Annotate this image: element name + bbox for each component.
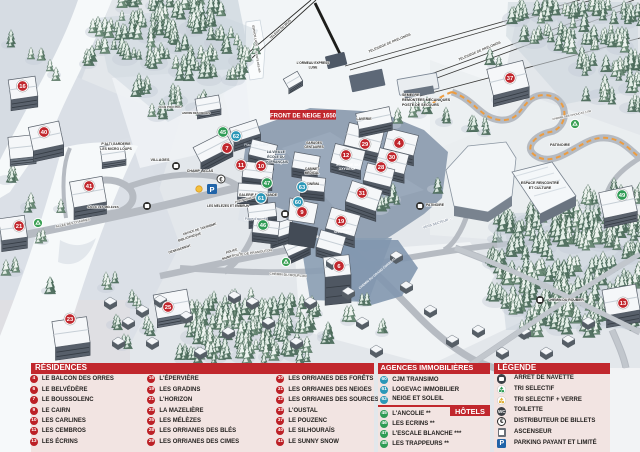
svg-text:19: 19 xyxy=(338,219,345,225)
svg-text:25: 25 xyxy=(165,305,172,311)
svg-text:10: 10 xyxy=(258,164,264,170)
svg-text:P: P xyxy=(209,185,214,194)
svg-text:CINÉMA: CINÉMA xyxy=(307,181,320,186)
svg-text:MÉDICAL: MÉDICAL xyxy=(305,170,320,175)
svg-text:SKI FRANÇAIS: SKI FRANÇAIS xyxy=(264,160,289,164)
svg-text:41: 41 xyxy=(86,184,93,190)
svg-text:CHAMP LACAS: CHAMP LACAS xyxy=(187,169,214,173)
svg-text:49: 49 xyxy=(619,193,626,199)
svg-text:LAVERIE: LAVERIE xyxy=(356,117,372,121)
svg-text:FRONT DE NEIGE 1650: FRONT DE NEIGE 1650 xyxy=(270,113,337,119)
svg-text:37: 37 xyxy=(507,76,513,82)
svg-text:7: 7 xyxy=(225,146,228,152)
svg-text:REMONTÉES MÉCANIQUES: REMONTÉES MÉCANIQUES xyxy=(402,97,451,102)
svg-text:CHEMIN DU ROUBIER: CHEMIN DU ROUBIER xyxy=(548,298,584,302)
svg-text:ESPACE RENCONTRE: ESPACE RENCONTRE xyxy=(521,181,560,185)
svg-text:12: 12 xyxy=(343,153,349,159)
svg-text:SPECTACLE: SPECTACLE xyxy=(334,230,352,234)
svg-text:ÉCOLE DU: ÉCOLE DU xyxy=(267,154,285,159)
svg-text:SEMELRE: SEMELRE xyxy=(402,93,420,97)
svg-text:JARDIN DES NEIGES: JARDIN DES NEIGES xyxy=(182,111,210,115)
svg-text:PATINOIRE: PATINOIRE xyxy=(550,143,571,147)
svg-text:47: 47 xyxy=(264,181,270,187)
svg-text:ET CULTURE: ET CULTURE xyxy=(529,186,552,190)
svg-text:60: 60 xyxy=(295,200,301,206)
svg-text:PATINOIRE: PATINOIRE xyxy=(426,203,445,207)
svg-text:46: 46 xyxy=(260,223,267,229)
svg-text:29: 29 xyxy=(362,142,369,148)
svg-text:Place du Soleil: Place du Soleil xyxy=(244,143,268,147)
svg-text:LUGE: LUGE xyxy=(309,66,318,70)
svg-text:21: 21 xyxy=(16,224,23,230)
svg-text:28: 28 xyxy=(378,165,385,171)
svg-text:LES MICRO LOUPS: LES MICRO LOUPS xyxy=(100,147,132,151)
svg-text:63: 63 xyxy=(299,185,306,191)
svg-text:CLUB PIOU PIOU: CLUB PIOU PIOU xyxy=(159,105,182,109)
svg-text:62: 62 xyxy=(233,134,239,140)
svg-text:VILLAGES: VILLAGES xyxy=(151,158,170,162)
svg-text:POSTE DE SECOURS: POSTE DE SECOURS xyxy=(402,103,440,107)
svg-text:L'ORMEAU EXPRESS: L'ORMEAU EXPRESS xyxy=(297,61,330,65)
svg-text:30: 30 xyxy=(389,155,395,161)
svg-text:61: 61 xyxy=(258,196,265,202)
svg-text:CENTAURES: CENTAURES xyxy=(304,145,324,149)
svg-text:P'ALTI GARDERIE: P'ALTI GARDERIE xyxy=(101,142,131,146)
svg-text:40: 40 xyxy=(41,130,47,136)
svg-text:13: 13 xyxy=(620,301,627,307)
svg-text:31: 31 xyxy=(359,191,366,197)
svg-text:OXYGÈNE: OXYGÈNE xyxy=(339,166,357,171)
svg-text:SALLE LES MÉLÈZES: SALLE LES MÉLÈZES xyxy=(87,204,119,209)
svg-text:11: 11 xyxy=(238,163,245,169)
svg-text:23: 23 xyxy=(67,317,74,323)
svg-text:LA VIEILLE: LA VIEILLE xyxy=(267,150,286,154)
svg-text:LES MÉLÈZES ET EMBRUN: LES MÉLÈZES ET EMBRUN xyxy=(207,203,250,208)
svg-text:45: 45 xyxy=(220,130,227,136)
svg-text:16: 16 xyxy=(19,84,26,90)
